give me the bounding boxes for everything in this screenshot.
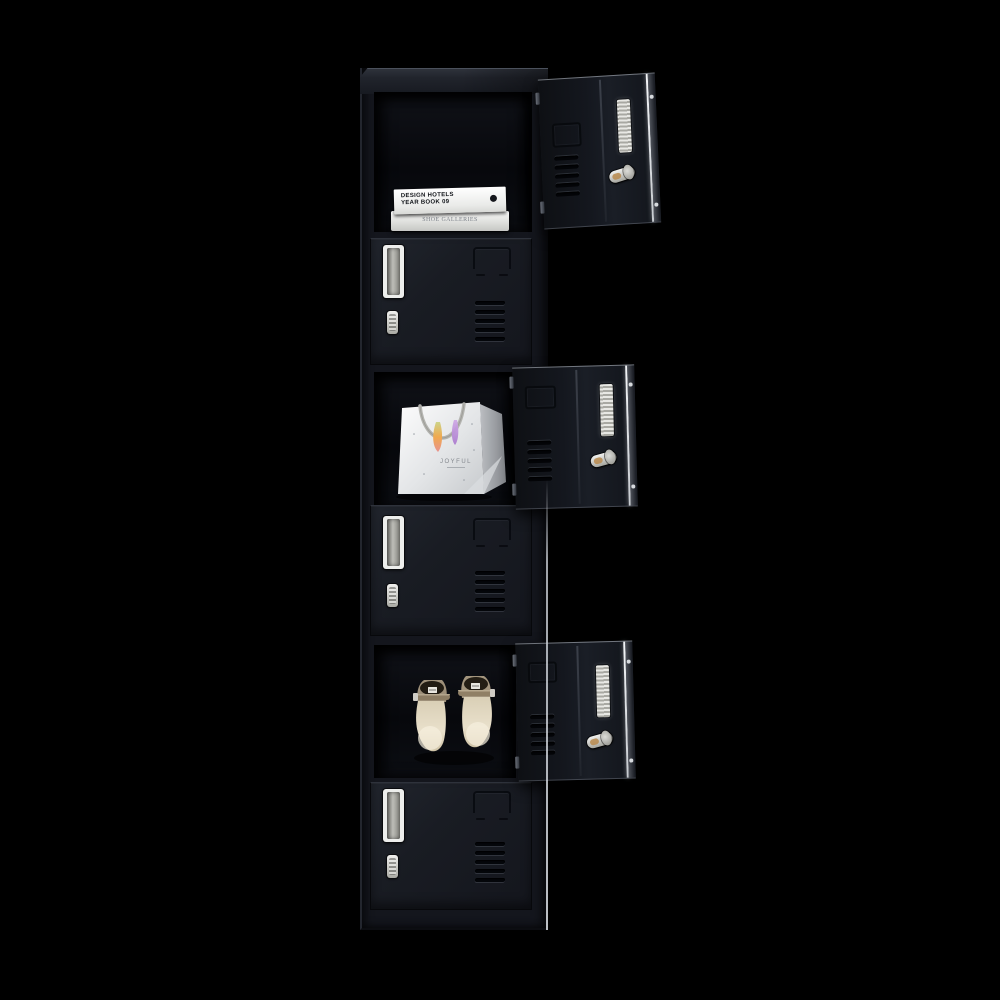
rivet xyxy=(631,485,635,489)
label-holder xyxy=(473,518,511,540)
locker-door-closed-4 xyxy=(370,505,532,636)
vent-grille xyxy=(475,842,509,887)
locker-right-edge-highlight xyxy=(546,480,548,930)
vent-grille xyxy=(475,301,509,346)
door-lock xyxy=(387,855,398,878)
rivet xyxy=(650,94,654,98)
product-photo-scene: SHOE GALLERIES DESIGN HOTELS YEAR BOOK 0… xyxy=(0,0,1000,1000)
locker-door-closed-6 xyxy=(370,782,532,910)
rivet xyxy=(654,203,658,207)
door-lock-back xyxy=(608,165,636,184)
door-hinge xyxy=(515,756,519,768)
door-lock-back xyxy=(589,450,617,469)
high-heel-shoes xyxy=(406,672,502,768)
locker-door-open-3 xyxy=(512,364,638,509)
label-holder xyxy=(473,247,511,269)
door-hinge xyxy=(540,202,545,214)
label-holder-back xyxy=(525,386,556,409)
locker-top-panel xyxy=(360,68,548,94)
locker-door-closed-2 xyxy=(370,238,532,365)
locker-door-open-5 xyxy=(515,640,636,781)
door-hinge xyxy=(512,484,516,496)
rivet xyxy=(629,382,633,386)
gift-bag-subtext-line xyxy=(447,467,465,468)
rivet xyxy=(627,659,631,663)
gift-bag xyxy=(394,394,518,502)
door-lock-back xyxy=(586,732,614,751)
vent-grille-back xyxy=(527,440,558,486)
vent-grille xyxy=(475,571,509,616)
door-panel-crease xyxy=(576,646,581,777)
door-hinge xyxy=(535,92,540,104)
door-lock xyxy=(387,584,398,607)
door-lock xyxy=(387,311,398,334)
door-hinge xyxy=(509,377,513,389)
door-handle-back xyxy=(617,99,632,153)
rivet xyxy=(629,759,633,763)
gift-bag-label: JOYFUL xyxy=(426,459,486,468)
door-handle xyxy=(383,245,404,298)
door-handle-back xyxy=(600,384,614,436)
locker-door-open-1 xyxy=(538,72,661,229)
book-top: DESIGN HOTELS YEAR BOOK 09 xyxy=(394,187,507,215)
label-holder-back xyxy=(551,122,581,147)
label-holder xyxy=(473,791,511,813)
book-bottom-title: SHOE GALLERIES xyxy=(422,217,477,223)
door-handle-back xyxy=(596,665,610,717)
door-hinge xyxy=(512,654,516,666)
vent-grille-back xyxy=(554,155,586,202)
door-panel-crease xyxy=(576,370,582,504)
door-panel-crease xyxy=(599,80,607,222)
label-holder-back xyxy=(527,661,557,684)
door-handle xyxy=(383,789,404,842)
door-handle xyxy=(383,516,404,569)
